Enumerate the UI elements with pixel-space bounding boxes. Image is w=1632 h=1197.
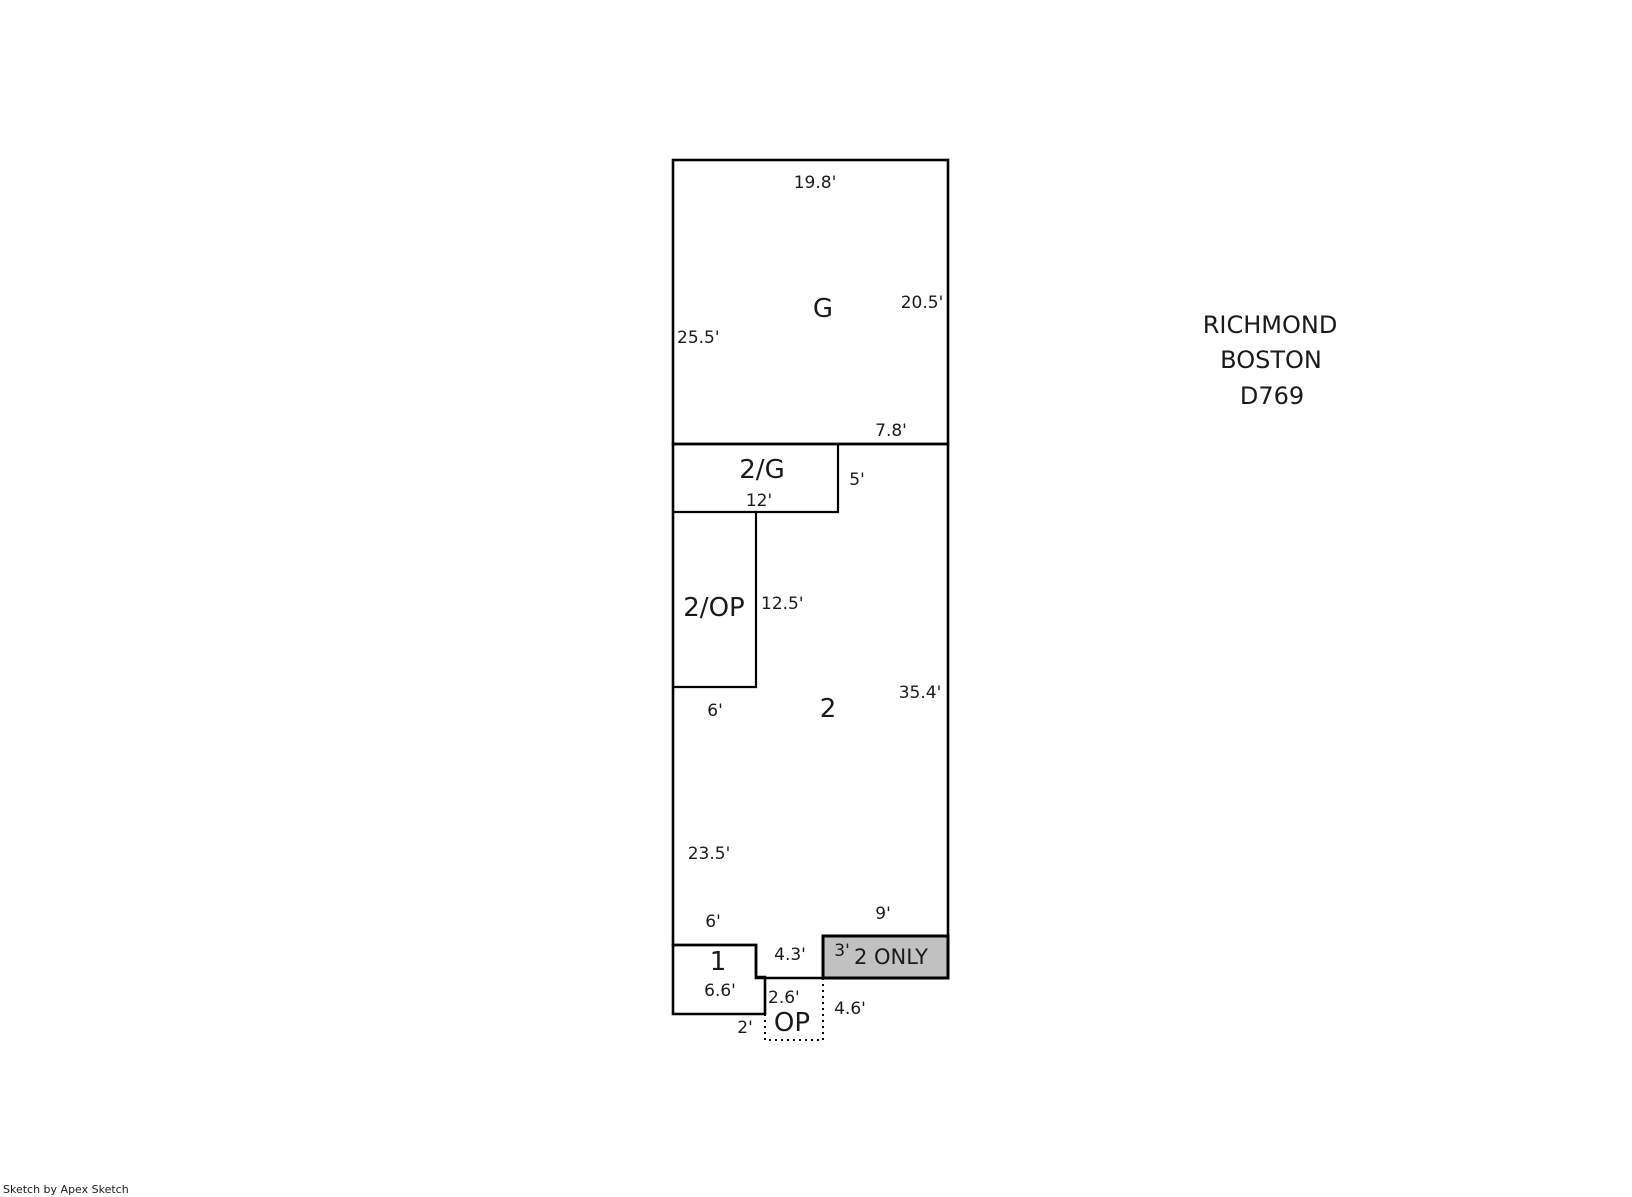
dim-one-inner: 6.6' — [704, 981, 736, 1001]
label-first-floor: 1 — [710, 947, 727, 977]
dim-two-op-right: 12.5' — [761, 594, 804, 614]
label-second-over-porch: 2/OP — [683, 593, 744, 623]
dim-g-right: 20.5' — [901, 293, 944, 313]
label-garage: G — [813, 294, 833, 324]
title-line-3: D769 — [1240, 382, 1304, 410]
dim-two-left-lower: 6' — [705, 912, 721, 932]
dim-one-bottom: 2' — [737, 1018, 753, 1038]
label-second-floor: 2 — [820, 694, 837, 724]
title-line-2: BOSTON — [1220, 346, 1322, 374]
dim-op-right: 4.6' — [834, 999, 866, 1019]
dim-g-left: 25.5' — [677, 328, 720, 348]
title-line-1: RICHMOND — [1203, 311, 1338, 339]
dim-two-only-left: 3' — [834, 941, 850, 961]
label-second-only: 2 ONLY — [854, 945, 928, 969]
floor-plan-sketch: G 2/G 2/OP 2 1 OP 2 ONLY 19.8' 20.5' 25.… — [0, 0, 1632, 1197]
dim-two-only-top: 9' — [875, 904, 891, 924]
dim-two-op-bottom: 6' — [707, 701, 723, 721]
dim-g-bottom: 7.8' — [875, 421, 907, 441]
dim-two-left: 23.5' — [688, 844, 731, 864]
label-open-porch: OP — [774, 1008, 810, 1038]
footer-credit: Sketch by Apex Sketch — [3, 1183, 129, 1196]
dim-two-g-right: 5' — [849, 470, 865, 490]
dim-op-left: 2.6' — [768, 988, 800, 1008]
dim-g-top: 19.8' — [794, 173, 837, 193]
dim-two-right: 35.4' — [899, 683, 942, 703]
dim-mid-bottom: 4.3' — [774, 945, 806, 965]
label-second-over-garage: 2/G — [739, 455, 784, 485]
dim-two-g-bottom: 12' — [746, 491, 772, 511]
sketch-canvas: G 2/G 2/OP 2 1 OP 2 ONLY 19.8' 20.5' 25.… — [0, 0, 1632, 1197]
